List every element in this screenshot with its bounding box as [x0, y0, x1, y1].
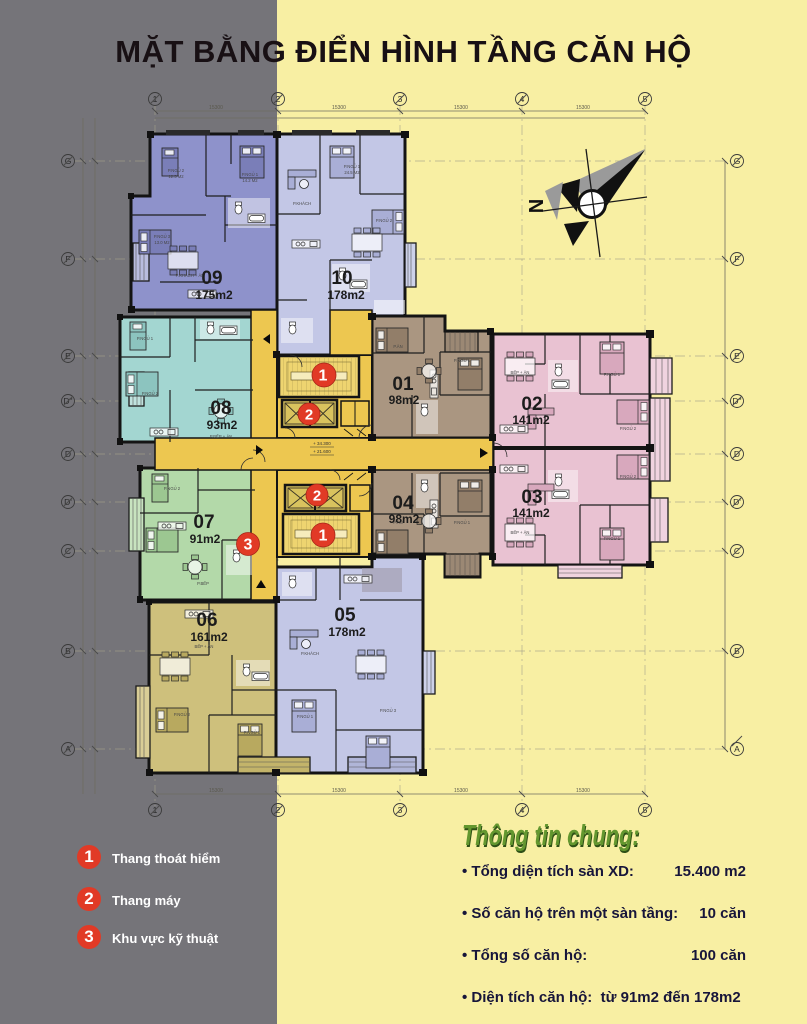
svg-text:15300: 15300	[209, 788, 223, 794]
svg-text:178m2: 178m2	[327, 288, 365, 302]
svg-text:01: 01	[392, 374, 414, 395]
svg-text:P.BẾP + ĂN: P.BẾP + ĂN	[210, 434, 232, 439]
svg-text:08: 08	[210, 398, 231, 419]
svg-text:P.NGỦ 2: P.NGỦ 2	[142, 391, 159, 396]
svg-text:P.KHÁCH: P.KHÁCH	[301, 651, 319, 656]
svg-text:P.NGỦ 3: P.NGỦ 3	[380, 708, 397, 713]
svg-text:P.NGỦ 2: P.NGỦ 2	[620, 474, 637, 479]
svg-text:02: 02	[521, 394, 542, 415]
svg-text:BẾP + ĂN: BẾP + ĂN	[195, 644, 214, 649]
svg-text:+ 34.300: + 34.300	[313, 441, 331, 446]
svg-text:91m2: 91m2	[190, 532, 221, 546]
svg-text:141m2: 141m2	[512, 413, 550, 427]
svg-text:15300: 15300	[454, 788, 468, 794]
svg-text:09: 09	[201, 268, 222, 289]
svg-text:3: 3	[244, 537, 253, 554]
svg-text:A: A	[734, 744, 740, 754]
svg-text:P.NGỦ 1: P.NGỦ 1	[604, 372, 621, 377]
svg-text:178m2: 178m2	[328, 625, 366, 639]
svg-text:15300: 15300	[576, 105, 590, 111]
svg-text:15300: 15300	[209, 105, 223, 111]
svg-text:06: 06	[196, 610, 217, 631]
svg-text:P.KHÁCH + ĂN: P.KHÁCH + ĂN	[176, 273, 205, 278]
svg-text:03: 03	[521, 487, 542, 508]
svg-text:P.NGỦ 1: P.NGỦ 1	[137, 336, 154, 341]
svg-text:P.NGỦ 1: P.NGỦ 1	[297, 714, 314, 719]
svg-text:P.NGỦ 2: P.NGỦ 2	[168, 168, 185, 173]
svg-text:1: 1	[319, 368, 328, 385]
svg-text:15300: 15300	[332, 105, 346, 111]
svg-text:141m2: 141m2	[512, 506, 550, 520]
svg-text:P.BẾP: P.BẾP	[197, 581, 209, 586]
svg-text:15300: 15300	[576, 788, 590, 794]
svg-text:P.NGỦ 2: P.NGỦ 2	[620, 426, 637, 431]
svg-text:24.5 M2: 24.5 M2	[344, 170, 360, 175]
svg-text:2: 2	[305, 407, 313, 424]
svg-text:14.2 M2: 14.2 M2	[242, 178, 258, 183]
svg-text:13.0 M2: 13.0 M2	[154, 240, 170, 245]
svg-text:10: 10	[331, 268, 352, 289]
svg-text:07: 07	[193, 512, 214, 533]
svg-text:P.ĂN: P.ĂN	[393, 344, 402, 349]
svg-text:P.NGỦ 1: P.NGỦ 1	[604, 536, 621, 541]
svg-text:BẾP + ĂN: BẾP + ĂN	[511, 530, 530, 535]
svg-text:P.NGỦ 2: P.NGỦ 2	[174, 712, 191, 717]
svg-text:+ 21.600: + 21.600	[313, 449, 331, 454]
svg-text:175m2: 175m2	[195, 288, 233, 302]
svg-text:P.NGỦ 2: P.NGỦ 2	[376, 218, 393, 223]
svg-text:P.NGỦ 3: P.NGỦ 3	[154, 234, 171, 239]
svg-text:12.5 M2: 12.5 M2	[168, 174, 184, 179]
svg-text:P.NGỦ 1: P.NGỦ 1	[244, 730, 261, 735]
svg-text:P.NGỦ 1: P.NGỦ 1	[344, 164, 361, 169]
svg-text:P.KHÁCH: P.KHÁCH	[293, 201, 311, 206]
svg-text:98m2: 98m2	[389, 393, 420, 407]
svg-text:BẾP + ĂN: BẾP + ĂN	[511, 370, 530, 375]
svg-text:93m2: 93m2	[207, 418, 238, 432]
svg-text:15300: 15300	[332, 788, 346, 794]
svg-text:P.NGỦ 1: P.NGỦ 1	[454, 358, 471, 363]
svg-text:161m2: 161m2	[190, 630, 228, 644]
svg-text:98m2: 98m2	[389, 512, 420, 526]
svg-text:P.NGỦ 2: P.NGỦ 2	[164, 486, 181, 491]
svg-text:05: 05	[334, 605, 356, 626]
svg-text:2: 2	[313, 488, 321, 505]
svg-text:04: 04	[392, 493, 414, 514]
svg-text:1: 1	[319, 528, 328, 545]
svg-text:P.NGỦ 1: P.NGỦ 1	[454, 520, 471, 525]
svg-text:P.NGỦ 1: P.NGỦ 1	[242, 172, 259, 177]
svg-text:15300: 15300	[454, 105, 468, 111]
svg-text:N: N	[526, 199, 548, 213]
